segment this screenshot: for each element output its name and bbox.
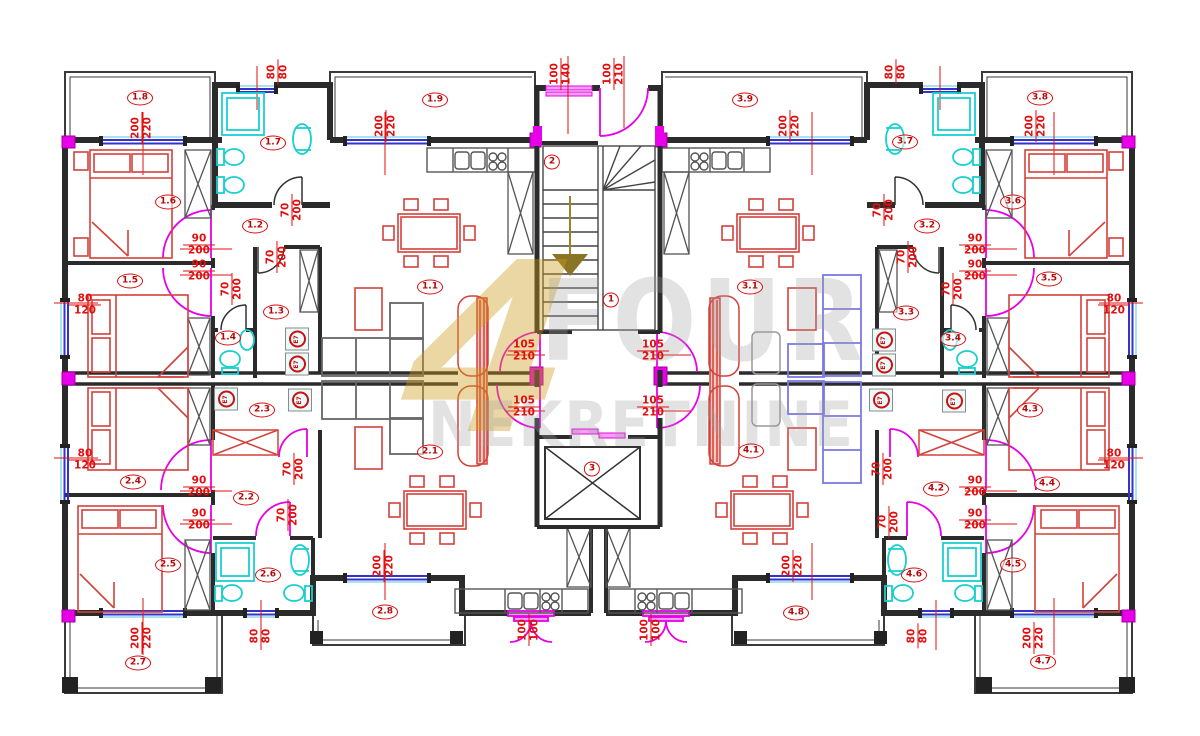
room-label: 4.4 (1034, 477, 1060, 492)
sofa-left-bottom (322, 381, 423, 454)
sofa-right-top (788, 275, 861, 377)
coffee-tables-right (788, 288, 816, 470)
room-label: 3.8 (1027, 91, 1053, 106)
dimension-label: 90200 (183, 475, 215, 498)
room-label: 2.3 (249, 403, 275, 418)
room-label: 3.3 (893, 306, 919, 321)
elevator-door (572, 429, 625, 438)
dimension-label: 100100 (639, 614, 662, 646)
room-label: 1.3 (263, 305, 289, 320)
dimension-label: 200220 (130, 622, 153, 654)
room-label: 1.6 (155, 195, 181, 210)
washing-machine-symbol: E7 (872, 329, 896, 352)
dimension-label: 8080 (249, 624, 272, 649)
dimension-label: 80120 (1098, 448, 1130, 471)
room-label: 3.9 (732, 93, 758, 108)
dimension-label: 70200 (280, 194, 303, 226)
washing-machine-symbol: E7 (214, 388, 238, 411)
dimension-label: 90200 (183, 233, 215, 256)
dimension-label: 8080 (884, 60, 907, 85)
room-label: 4.7 (1030, 655, 1056, 670)
room-label: 3.6 (1000, 195, 1026, 210)
room-label: 3.2 (914, 219, 940, 234)
room-label: 2.4 (120, 475, 146, 490)
dimension-label: 70200 (276, 499, 299, 531)
dimension-label: 70200 (282, 453, 305, 485)
dimension-label: 90200 (959, 508, 991, 531)
dimension-label: 200220 (1024, 110, 1047, 142)
living-double-door (458, 296, 488, 466)
dimension-label: 200220 (374, 110, 397, 142)
washing-machine-symbol: E7 (288, 389, 312, 412)
room-label: 1.7 (260, 136, 286, 151)
dimension-label: 200220 (781, 550, 804, 582)
room-label: 4.3 (1017, 403, 1043, 418)
dimension-label: 200220 (1022, 622, 1045, 654)
room-label: 2.1 (417, 445, 443, 460)
washing-machine-symbol: E7 (285, 328, 309, 351)
dimension-label: 8080 (906, 624, 929, 649)
room-label: 2.6 (255, 568, 281, 583)
dimension-label: 70200 (265, 241, 288, 273)
dimension-label: 100100 (517, 614, 540, 646)
room-label: 3.7 (892, 135, 918, 150)
room-label: 4.1 (738, 444, 764, 459)
sofa-left-top (322, 303, 423, 376)
room-label: 3.4 (940, 332, 966, 347)
dimension-label: 200220 (778, 110, 801, 142)
elevator (545, 447, 640, 519)
dimension-label: 80120 (69, 448, 101, 471)
dimension-label: 90200 (183, 259, 215, 282)
dimension-label: 100140 (549, 58, 572, 90)
room-label: 1.8 (127, 91, 153, 106)
room-label: 1.4 (215, 331, 241, 346)
dimension-label: 70200 (871, 453, 894, 485)
dimension-label: 100210 (602, 58, 625, 90)
dimension-label: 70200 (896, 241, 919, 273)
washing-machine-symbol: E7 (285, 353, 309, 376)
dimension-label: 105210 (508, 339, 540, 362)
dimension-label: 200220 (130, 112, 153, 144)
dimension-label: 70200 (877, 506, 900, 538)
room-label: 2.2 (233, 491, 259, 506)
beds (74, 150, 188, 612)
room-label: 4.5 (1000, 558, 1026, 573)
sofa-right-bottom (788, 381, 861, 483)
dimension-label: 70200 (941, 273, 964, 305)
room-label: 2.7 (125, 656, 151, 671)
armchairs-right (752, 332, 780, 426)
room-label: 4.8 (783, 606, 809, 621)
washing-machine-symbol: E7 (869, 389, 893, 412)
dimension-label: 90200 (959, 475, 991, 498)
dimension-label: 105210 (637, 395, 669, 418)
floor-plan: 4 FOUR NEKRETNINE 1.81.71.93.93.73.81.61… (0, 0, 1200, 736)
room-label: 1.2 (242, 219, 268, 234)
floor-plan-drawing (0, 0, 1200, 736)
dimension-label: 80120 (69, 293, 101, 316)
dimension-label: 105210 (508, 395, 540, 418)
dimension-label: 80120 (1098, 293, 1130, 316)
red-cabinet (213, 430, 278, 455)
room-label: 4.6 (901, 568, 927, 583)
room-label: 4.2 (923, 482, 949, 497)
dimension-label: 105210 (637, 339, 669, 362)
core (533, 56, 664, 527)
washing-machine-symbol: E7 (872, 354, 896, 377)
dimension-label: 70200 (220, 273, 243, 305)
room-label: 1.9 (422, 93, 448, 108)
room-label: 1.1 (417, 280, 443, 295)
dimension-label: 70200 (872, 194, 895, 226)
room-label: 3.1 (737, 280, 763, 295)
room-label: 2.8 (372, 605, 398, 620)
coffee-tables-left (355, 288, 382, 469)
room-label: 1.5 (117, 274, 143, 289)
dimension-label: 200220 (372, 550, 395, 582)
dimension-label: 8080 (266, 60, 289, 85)
washing-machine-symbol: E7 (942, 390, 966, 413)
room-label: 2.5 (155, 558, 181, 573)
staircase (543, 146, 655, 330)
room-label: 3.5 (1036, 272, 1062, 287)
dimension-label: 90200 (959, 233, 991, 256)
dimension-label: 90200 (183, 508, 215, 531)
